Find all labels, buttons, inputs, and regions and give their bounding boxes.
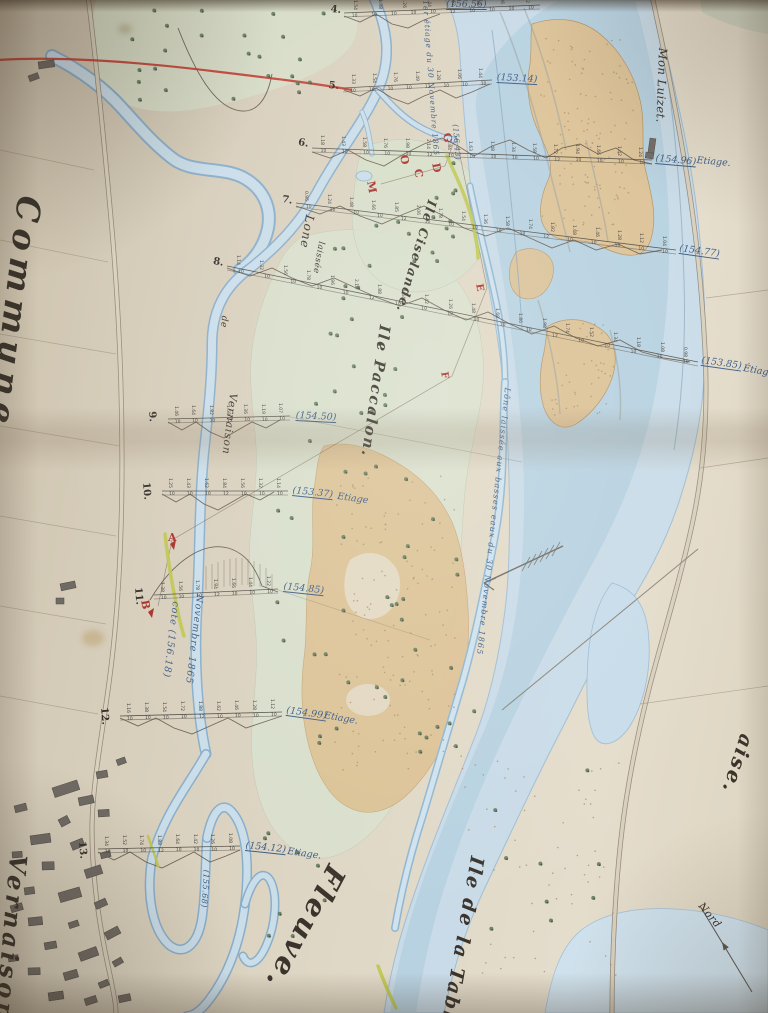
- section-line: [343, 84, 492, 92]
- section-lines-layer: [0, 0, 768, 1013]
- section-line: [120, 716, 282, 720]
- section-line: [227, 266, 698, 362]
- section-line: [168, 420, 290, 423]
- section-line: [227, 270, 698, 366]
- section-line: [98, 850, 240, 853]
- section-line: [296, 207, 676, 254]
- section-line: [168, 416, 290, 419]
- section-line: [344, 9, 540, 17]
- map-photo: CommuneVernaisonFleuve.Ile de la TableIl…: [0, 0, 768, 1013]
- section-line: [120, 712, 282, 716]
- section-line: [98, 846, 240, 849]
- section-line: [344, 5, 540, 13]
- section-line: [343, 80, 492, 88]
- section-line: [296, 203, 676, 250]
